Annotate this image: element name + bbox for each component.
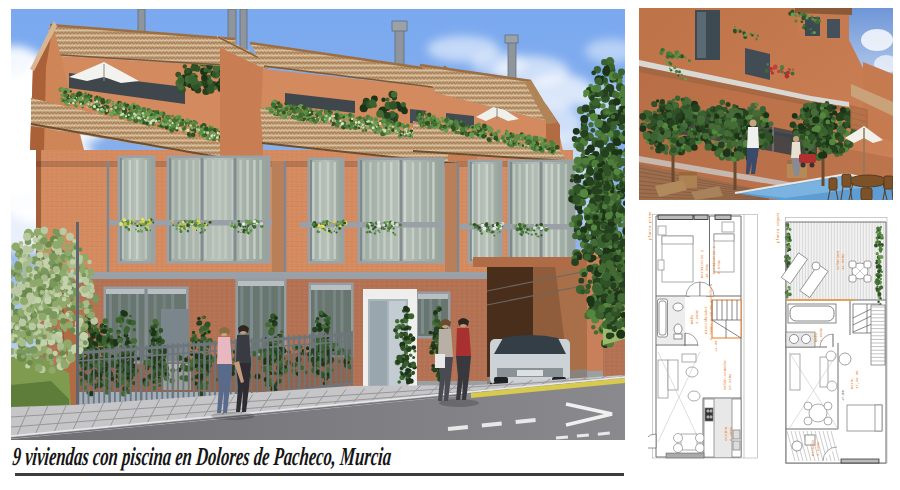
svg-text:Dorm.: Dorm. <box>850 377 854 389</box>
svg-text:23.24m2: 23.24m2 <box>728 373 732 390</box>
svg-text:17,29 m2: 17,29 m2 <box>855 370 859 389</box>
svg-text:Baño: Baño <box>690 314 694 324</box>
svg-text:Solarium: Solarium <box>836 251 840 270</box>
svg-text:+4.00: +4.00 <box>714 340 718 352</box>
svg-text:4.92m2: 4.92m2 <box>819 327 823 342</box>
svg-text:2.74m2+ 2.30 m2 escalera: 2.74m2+ 2.30 m2 escalera <box>709 283 713 340</box>
svg-text:Baño: Baño <box>814 332 818 342</box>
svg-text:planta segunda: planta segunda <box>776 213 780 243</box>
svg-text:Estudio: Estudio <box>811 439 815 456</box>
svg-text:planta primera: planta primera <box>648 212 652 240</box>
svg-text:+7.00: +7.00 <box>841 390 845 401</box>
svg-text:Cocina: Cocina <box>724 426 728 441</box>
svg-text:3.24m2: 3.24m2 <box>816 441 820 456</box>
svg-text:3.29m2: 3.29m2 <box>695 309 699 324</box>
svg-text:Salón-Comedor: Salón-Comedor <box>723 360 727 390</box>
svg-text:Dormitorio 1: Dormitorio 1 <box>700 249 704 278</box>
svg-text:8.07m2: 8.07m2 <box>717 259 721 274</box>
svg-text:10.3m2: 10.3m2 <box>705 263 709 278</box>
svg-text:Distribuidor: Distribuidor <box>704 306 708 334</box>
svg-text:Dormitorio 2: Dormitorio 2 <box>712 245 716 274</box>
svg-text:14.58m2: 14.58m2 <box>841 253 845 270</box>
svg-text:6.46m2: 6.46m2 <box>729 426 733 441</box>
